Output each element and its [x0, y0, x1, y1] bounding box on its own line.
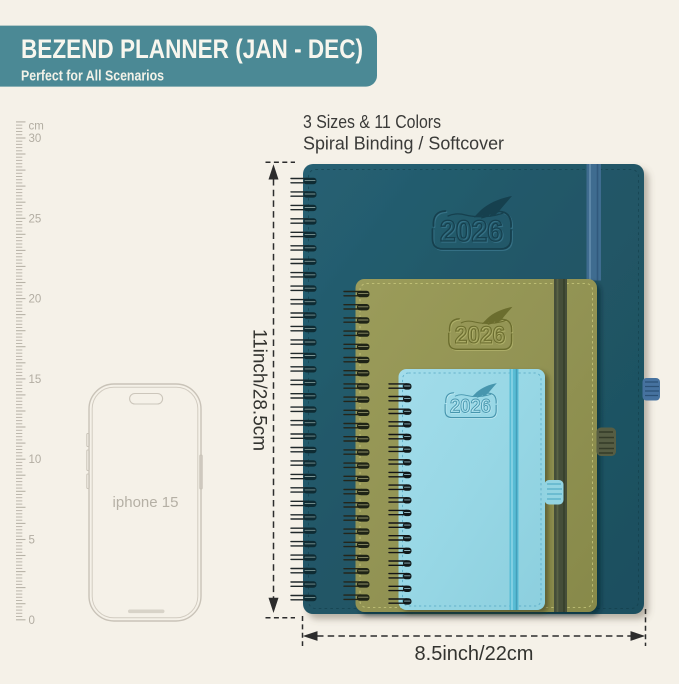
- svg-text:15: 15: [29, 374, 42, 386]
- svg-text:11inch/28.5cm: 11inch/28.5cm: [249, 329, 270, 451]
- svg-text:30: 30: [29, 133, 42, 145]
- svg-text:Spiral Binding / Softcover: Spiral Binding / Softcover: [303, 134, 504, 154]
- svg-text:3 Sizes & 11 Colors: 3 Sizes & 11 Colors: [303, 112, 441, 132]
- svg-text:2026: 2026: [450, 396, 491, 417]
- svg-text:25: 25: [29, 213, 42, 225]
- svg-text:iphone 15: iphone 15: [113, 494, 179, 511]
- svg-text:10: 10: [29, 454, 42, 466]
- svg-text:Perfect for All Scenarios: Perfect for All Scenarios: [21, 68, 164, 85]
- svg-text:2026: 2026: [440, 215, 503, 248]
- svg-text:2026: 2026: [455, 323, 505, 349]
- svg-text:BEZEND PLANNER (JAN - DEC): BEZEND PLANNER (JAN - DEC): [21, 34, 363, 64]
- svg-text:20: 20: [29, 294, 42, 306]
- svg-text:5: 5: [29, 535, 35, 547]
- svg-text:cm: cm: [29, 121, 44, 133]
- svg-text:8.5inch/22cm: 8.5inch/22cm: [415, 643, 534, 665]
- svg-text:0: 0: [29, 615, 35, 627]
